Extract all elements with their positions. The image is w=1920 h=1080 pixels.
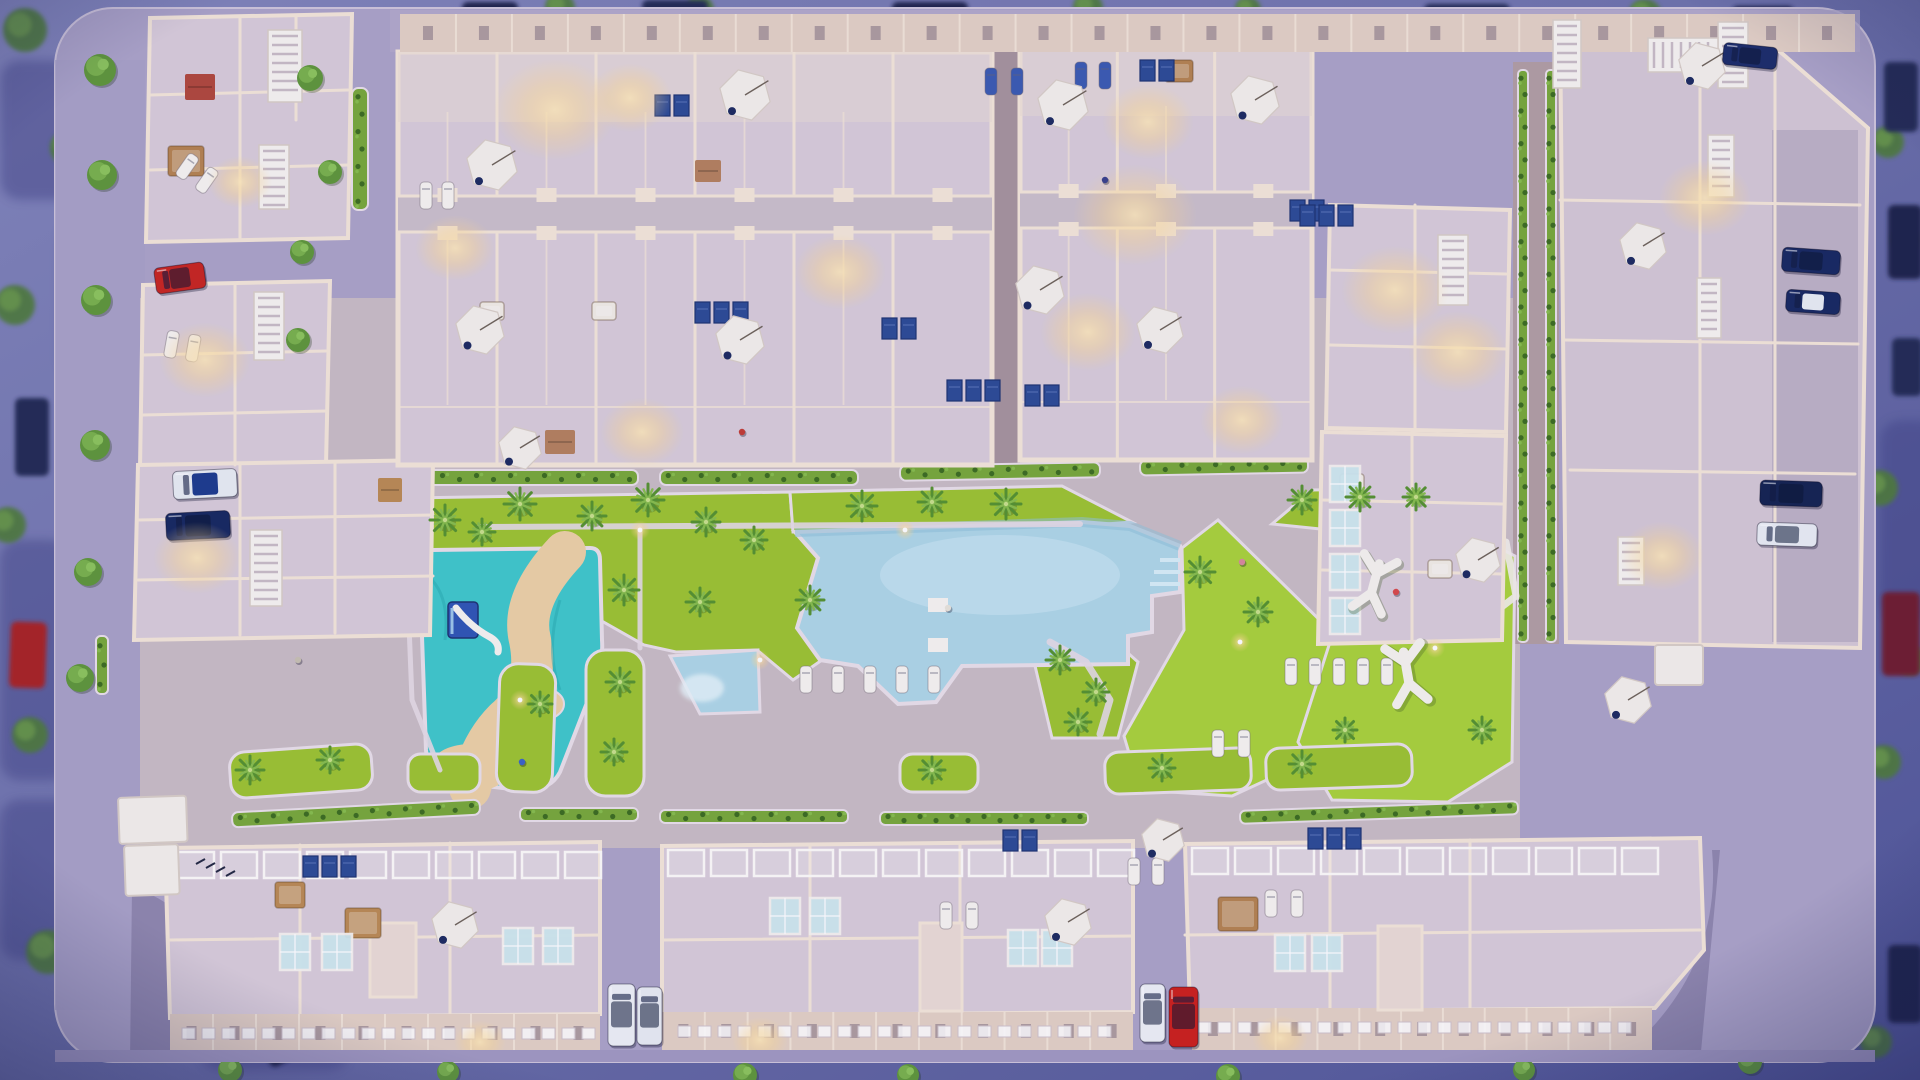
scene-canvas xyxy=(0,0,1920,1080)
aerial-render-residential-complex: { "scene": { "palette": { "bgA":"#7d80b6… xyxy=(0,0,1920,1080)
vignette-overlay xyxy=(0,0,1920,1080)
